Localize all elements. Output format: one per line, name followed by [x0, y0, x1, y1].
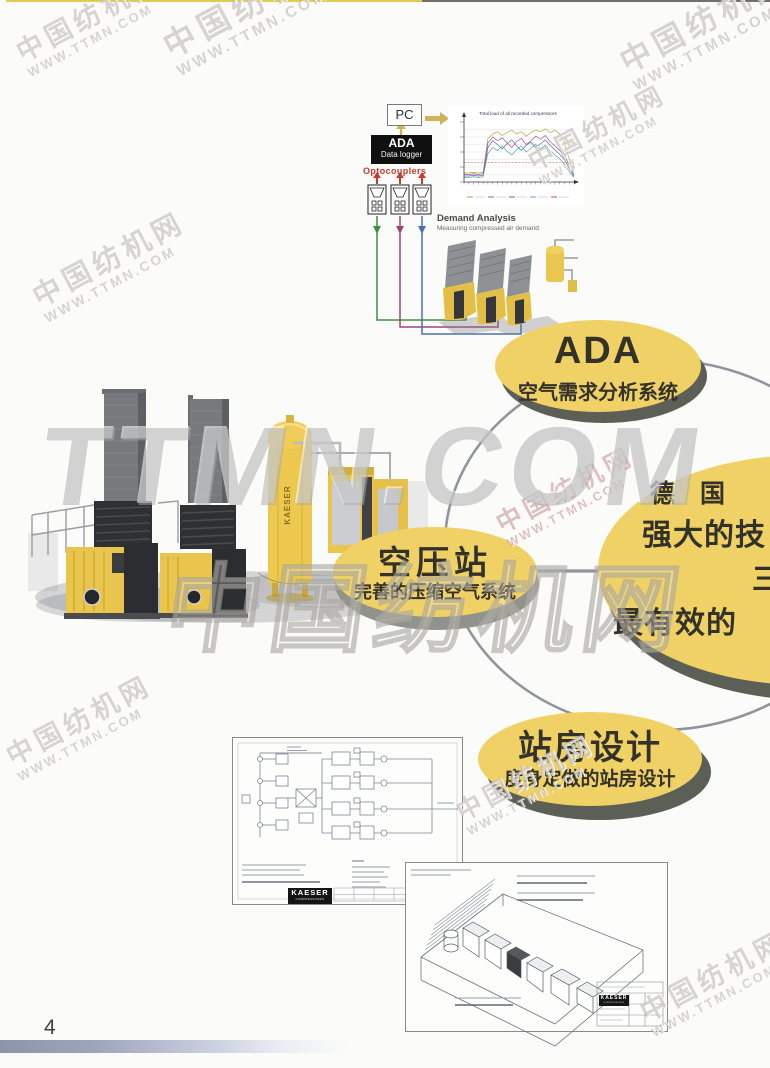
- hub-text-line1: 德 国: [650, 474, 734, 510]
- ada-data-logger-box: ADA Data logger: [371, 135, 432, 164]
- hub-text-line3: 三: [752, 556, 770, 598]
- small-compressors-image: [428, 236, 578, 336]
- chart-title: Total load of all recorded compressors: [479, 111, 557, 116]
- ada-logger-subtitle: Data logger: [371, 150, 432, 159]
- design-ellipse-subtitle: 度身定做的站房设计: [480, 764, 700, 791]
- exhaust-stacks: [102, 389, 229, 503]
- station-ellipse-title: 空压站: [335, 536, 535, 584]
- kaeser-logo-text: KAESER: [288, 888, 332, 897]
- ada-logger-title: ADA: [371, 137, 432, 150]
- scanned-brochure-page: Total load of all recorded compressors P…: [0, 0, 770, 1068]
- station-ellipse-subtitle: 完善的压缩空气系统: [335, 578, 535, 604]
- demand-chart: Total load of all recorded compressors: [448, 106, 584, 205]
- page-number: 4: [44, 1016, 56, 1040]
- pc-to-chart-arrow: [425, 112, 449, 125]
- ada-ellipse-title: ADA: [498, 330, 698, 373]
- station-layout-drawing: [405, 862, 668, 1032]
- kaeser-logo-text: KAESER: [599, 995, 629, 1002]
- kaeser-logo-subtext: KOMPRESSOREN: [288, 897, 332, 901]
- demand-analysis-title: Demand Analysis: [437, 213, 516, 224]
- pc-label: PC: [395, 107, 413, 122]
- kaeser-logo-subtext: KOMPRESSOREN: [599, 1002, 629, 1005]
- compressor-cabinets: [64, 543, 248, 619]
- footer-gradient-bar: [0, 1040, 348, 1053]
- ada-ellipse-subtitle: 空气需求分析系统: [498, 376, 698, 405]
- demand-analysis-subtitle: Measuring compressed air demand: [437, 225, 539, 232]
- pc-box: PC: [387, 104, 422, 126]
- louver-blocks: [94, 501, 236, 549]
- hub-text-line2: 强大的技: [642, 510, 766, 554]
- kaeser-logo-iso: KAESER KOMPRESSOREN: [599, 995, 629, 1006]
- optocouplers-label: Optocouplers: [363, 166, 426, 176]
- kaeser-logo-schematic: KAESER KOMPRESSOREN: [288, 888, 332, 904]
- design-ellipse-title: 站房设计: [480, 720, 700, 769]
- hub-text-line4: 最有效的: [613, 598, 737, 642]
- optocoupler-boxes: [368, 185, 431, 214]
- tank-brand-label: KAESER: [283, 485, 292, 524]
